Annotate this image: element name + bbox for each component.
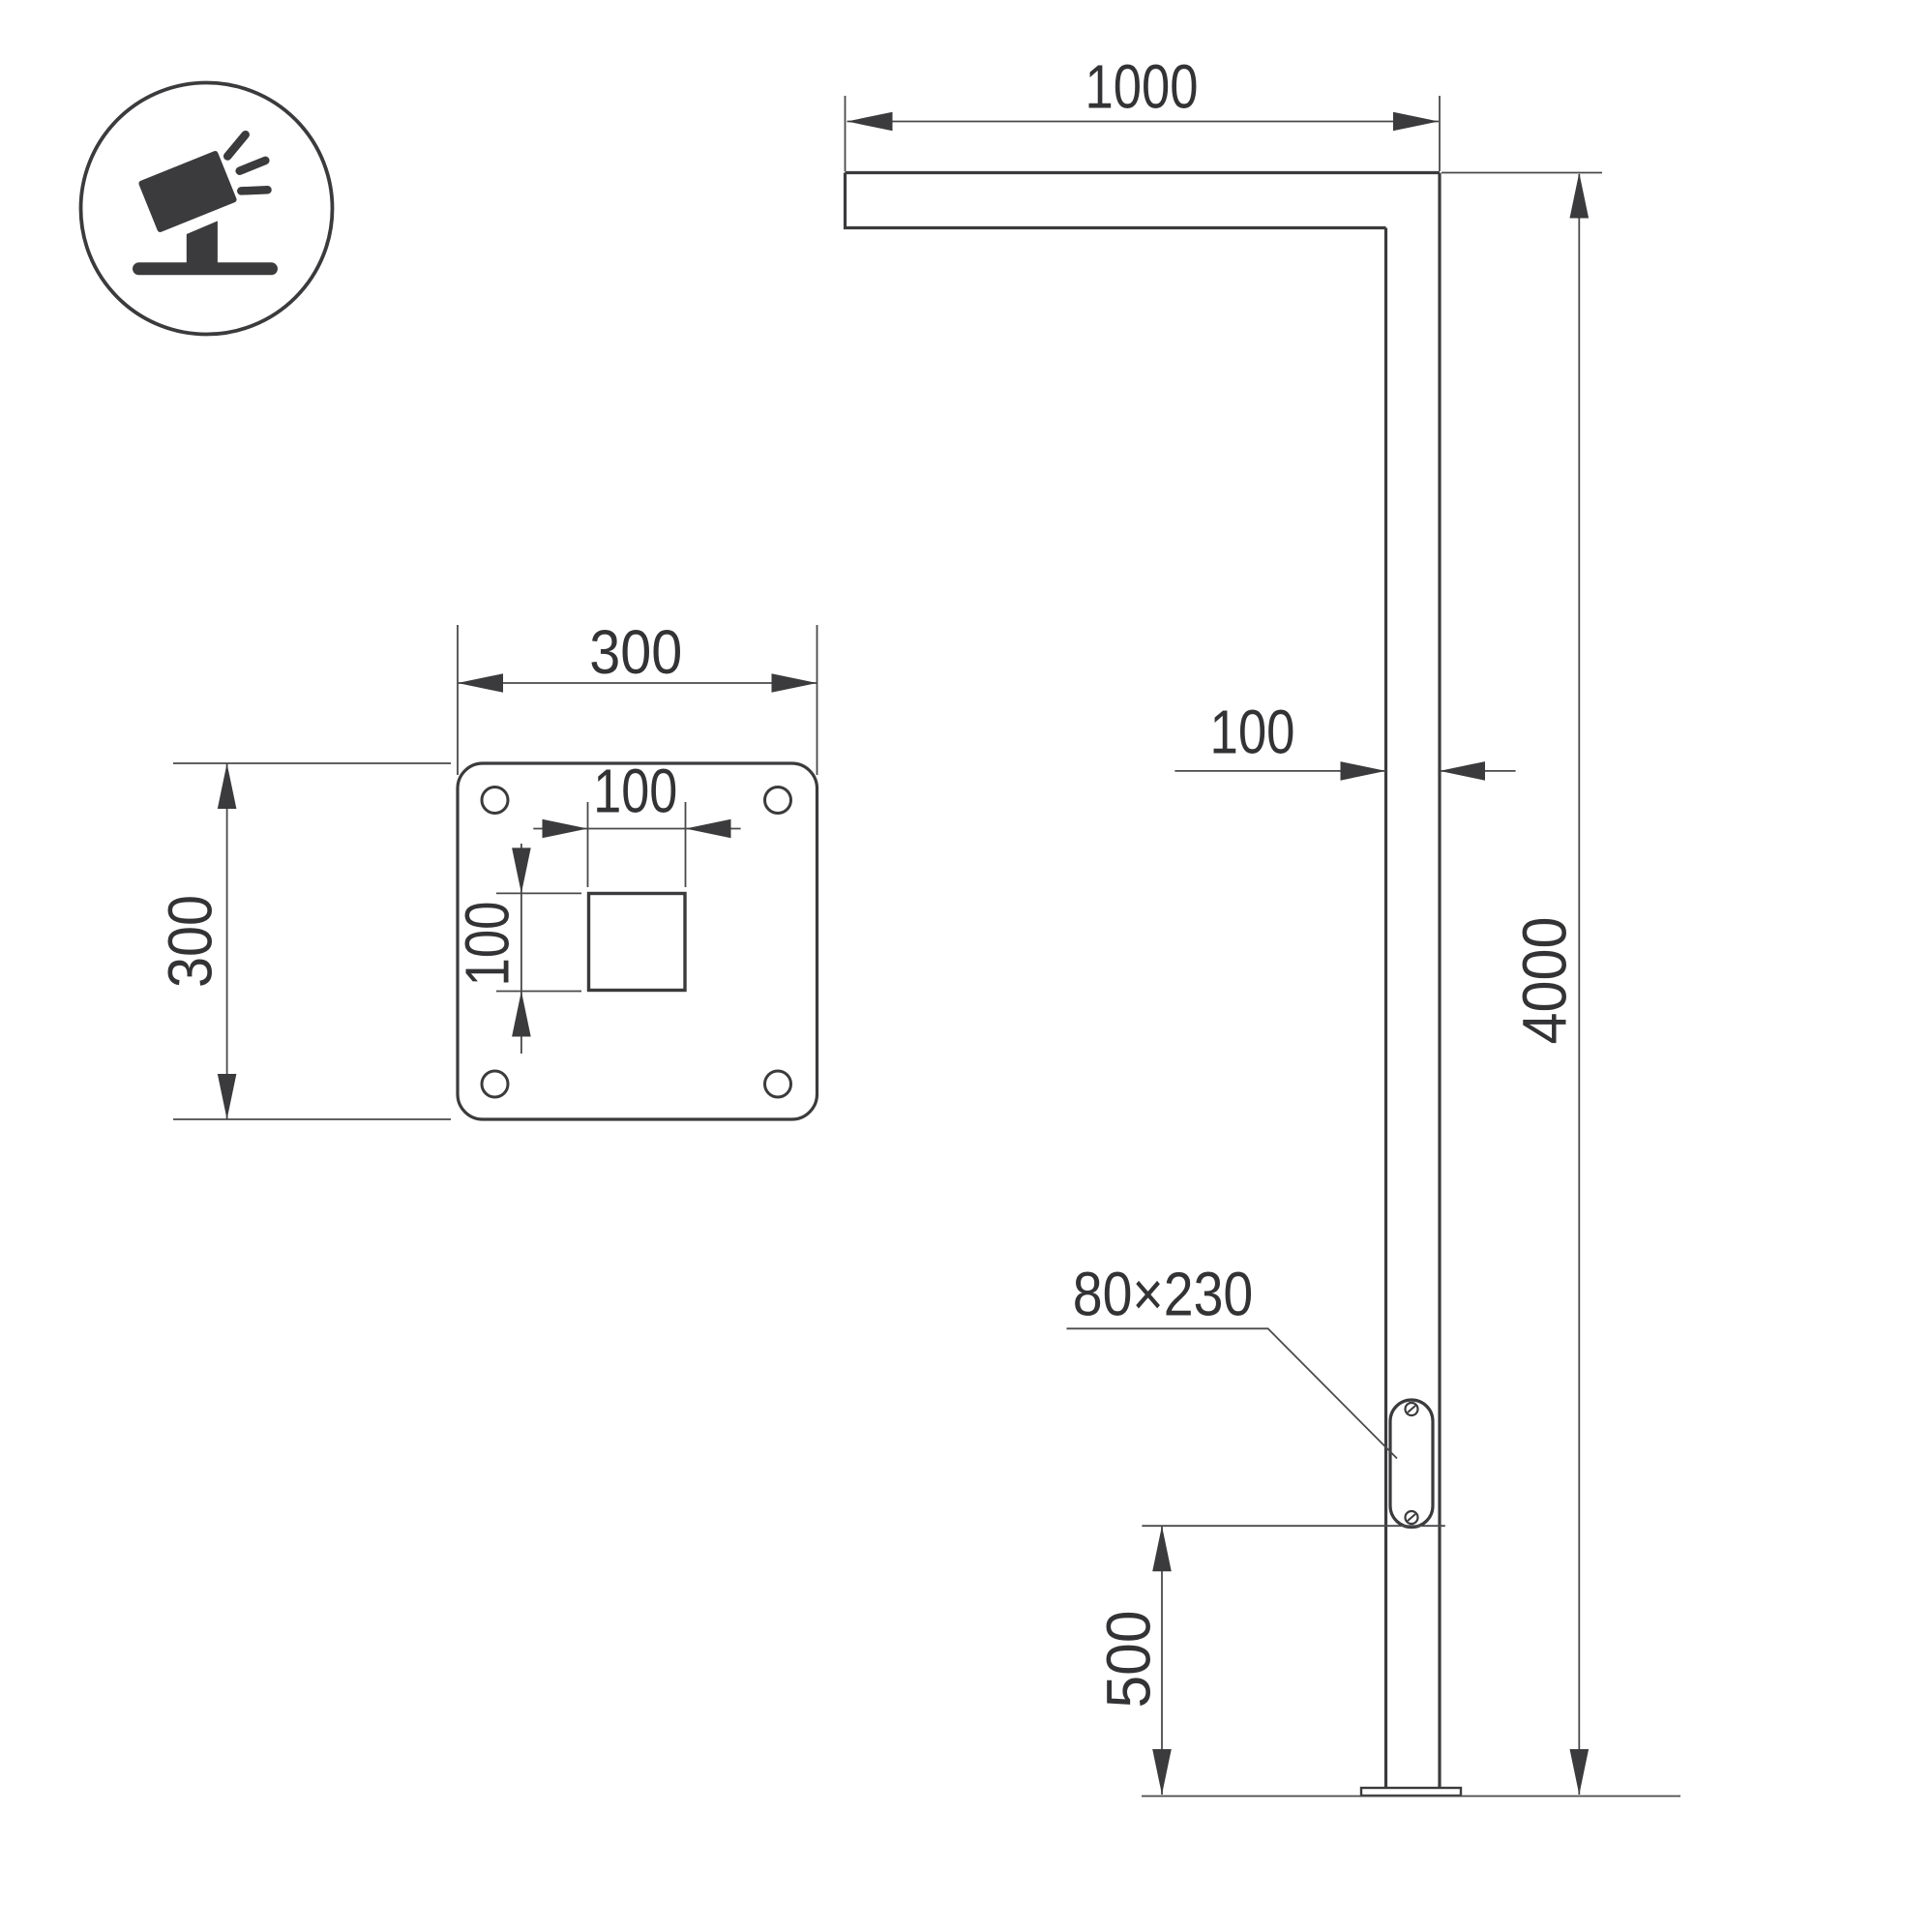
svg-text:100: 100 bbox=[593, 757, 677, 826]
svg-text:500: 500 bbox=[1094, 1611, 1164, 1709]
svg-text:100: 100 bbox=[453, 902, 522, 987]
svg-text:4000: 4000 bbox=[1510, 917, 1580, 1045]
svg-text:300: 300 bbox=[589, 617, 682, 687]
svg-text:1000: 1000 bbox=[1085, 52, 1199, 122]
svg-text:100: 100 bbox=[1210, 698, 1295, 767]
svg-text:300: 300 bbox=[156, 895, 225, 988]
svg-text:80×230: 80×230 bbox=[1073, 1260, 1254, 1329]
